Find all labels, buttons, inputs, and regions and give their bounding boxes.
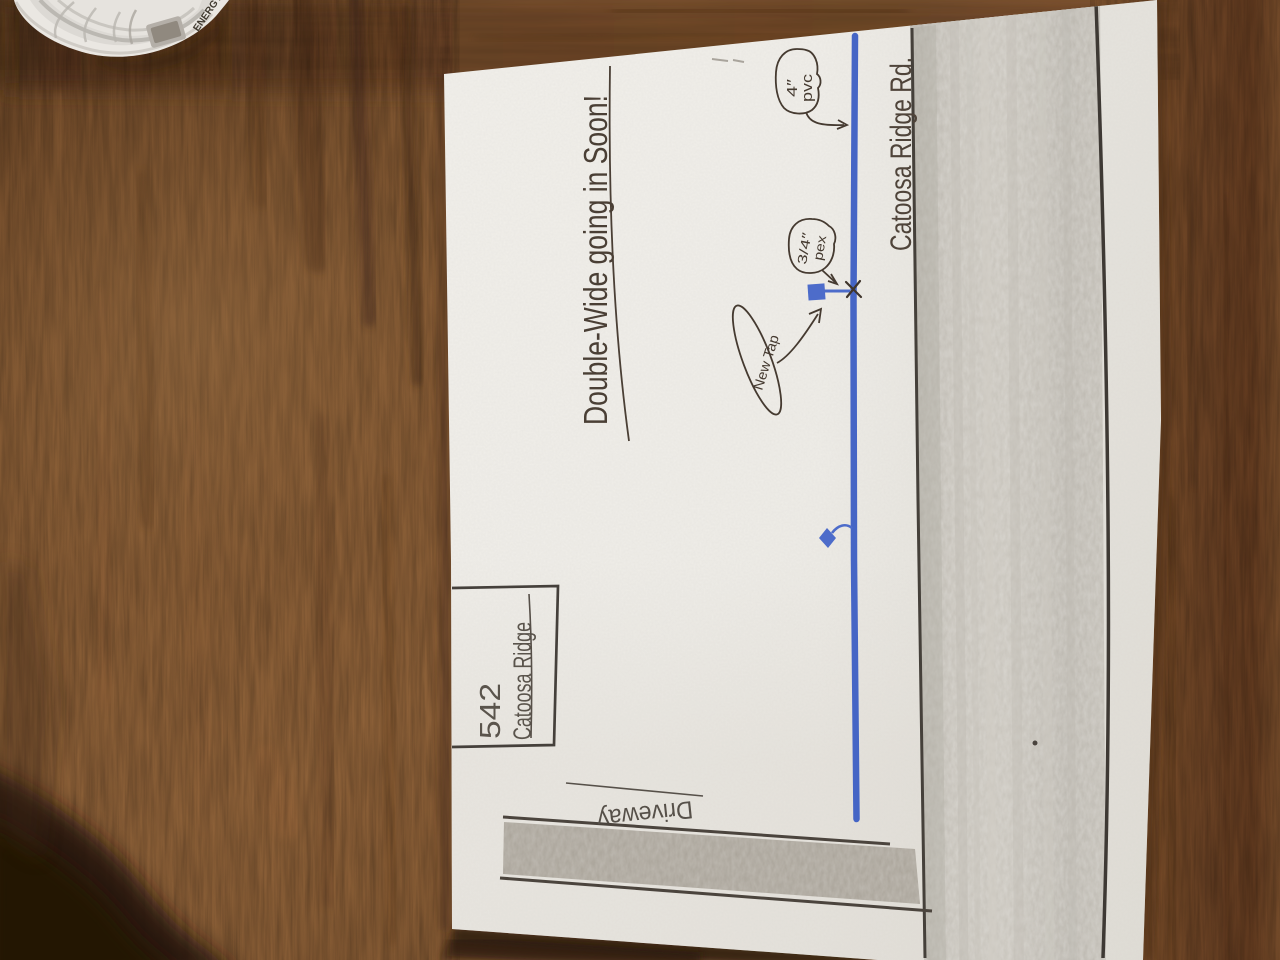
svg-text:542: 542	[475, 683, 507, 739]
svg-text:Catoosa Ridge: Catoosa Ridge	[509, 622, 537, 740]
svg-text:pvc: pvc	[799, 73, 816, 102]
svg-text:Double-Wide going in Soon!: Double-Wide going in Soon!	[577, 95, 614, 425]
svg-text:Catoosa Ridge Rd.: Catoosa Ridge Rd.	[885, 57, 918, 251]
